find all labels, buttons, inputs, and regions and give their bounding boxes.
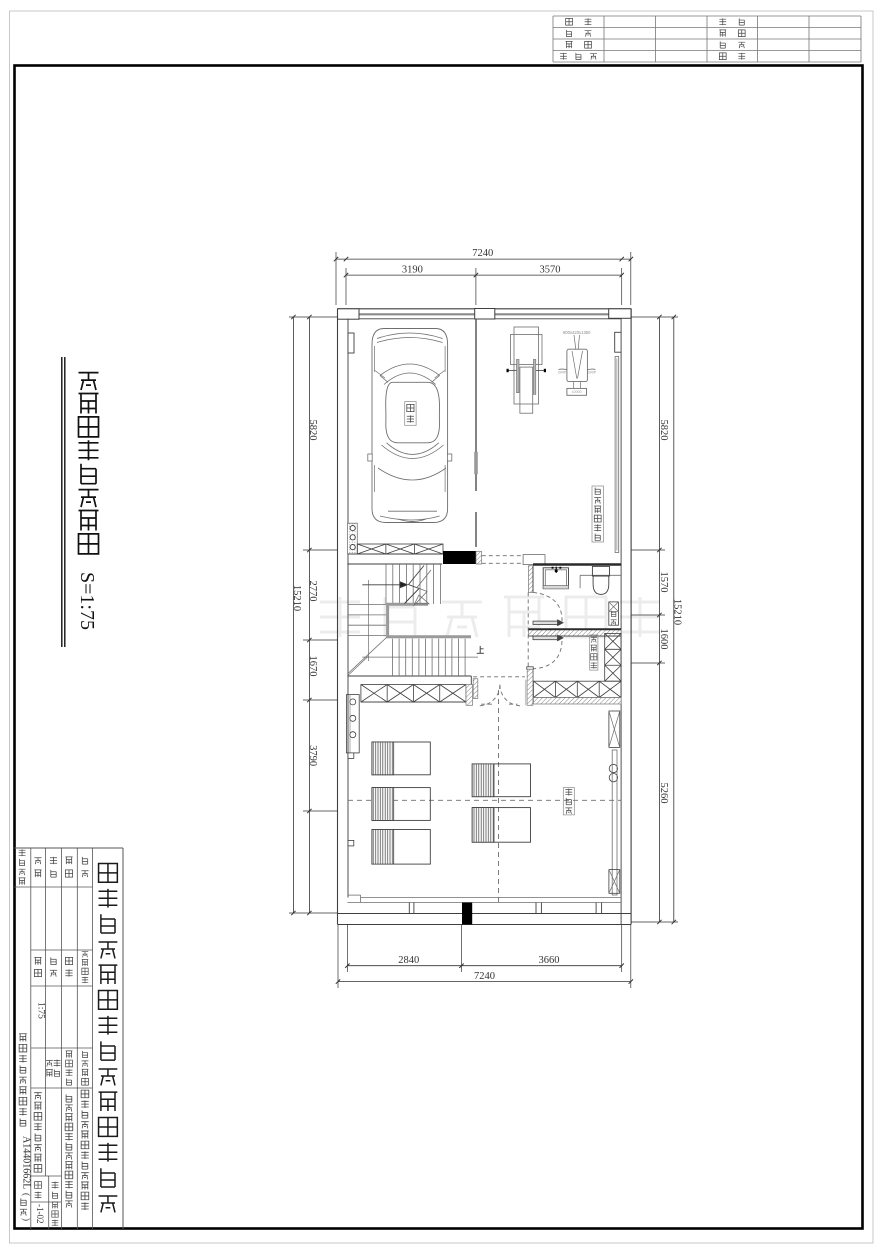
- svg-text:5820: 5820: [658, 420, 669, 441]
- svg-text:1670: 1670: [307, 656, 318, 677]
- svg-text:): ): [22, 1218, 32, 1221]
- svg-text:1:75: 1:75: [36, 1002, 46, 1019]
- svg-text:-1-02: -1-02: [35, 1204, 45, 1224]
- svg-text:600x420x1350: 600x420x1350: [563, 330, 591, 335]
- svg-text:1600: 1600: [658, 629, 669, 650]
- svg-text:5260: 5260: [658, 783, 669, 804]
- svg-text:15210: 15210: [672, 599, 683, 625]
- svg-text:2770: 2770: [307, 581, 318, 602]
- svg-text:2840: 2840: [398, 955, 419, 966]
- svg-text:GRIP: GRIP: [588, 371, 597, 375]
- svg-text:3790: 3790: [307, 745, 318, 766]
- svg-text:7240: 7240: [474, 971, 495, 982]
- svg-text:3190: 3190: [402, 265, 423, 276]
- svg-text:(: (: [22, 1193, 32, 1196]
- svg-text:15210: 15210: [291, 585, 302, 611]
- svg-text:A14401662L: A14401662L: [21, 1136, 32, 1189]
- svg-text:3570: 3570: [540, 265, 561, 276]
- svg-text:x2000: x2000: [572, 390, 582, 394]
- svg-text:1570: 1570: [658, 572, 669, 593]
- svg-text:5820: 5820: [307, 420, 318, 441]
- svg-text:S=1:75: S=1:75: [76, 572, 98, 630]
- svg-text:GRIP: GRIP: [558, 371, 567, 375]
- svg-text:7240: 7240: [472, 248, 493, 259]
- svg-text:3660: 3660: [539, 955, 560, 966]
